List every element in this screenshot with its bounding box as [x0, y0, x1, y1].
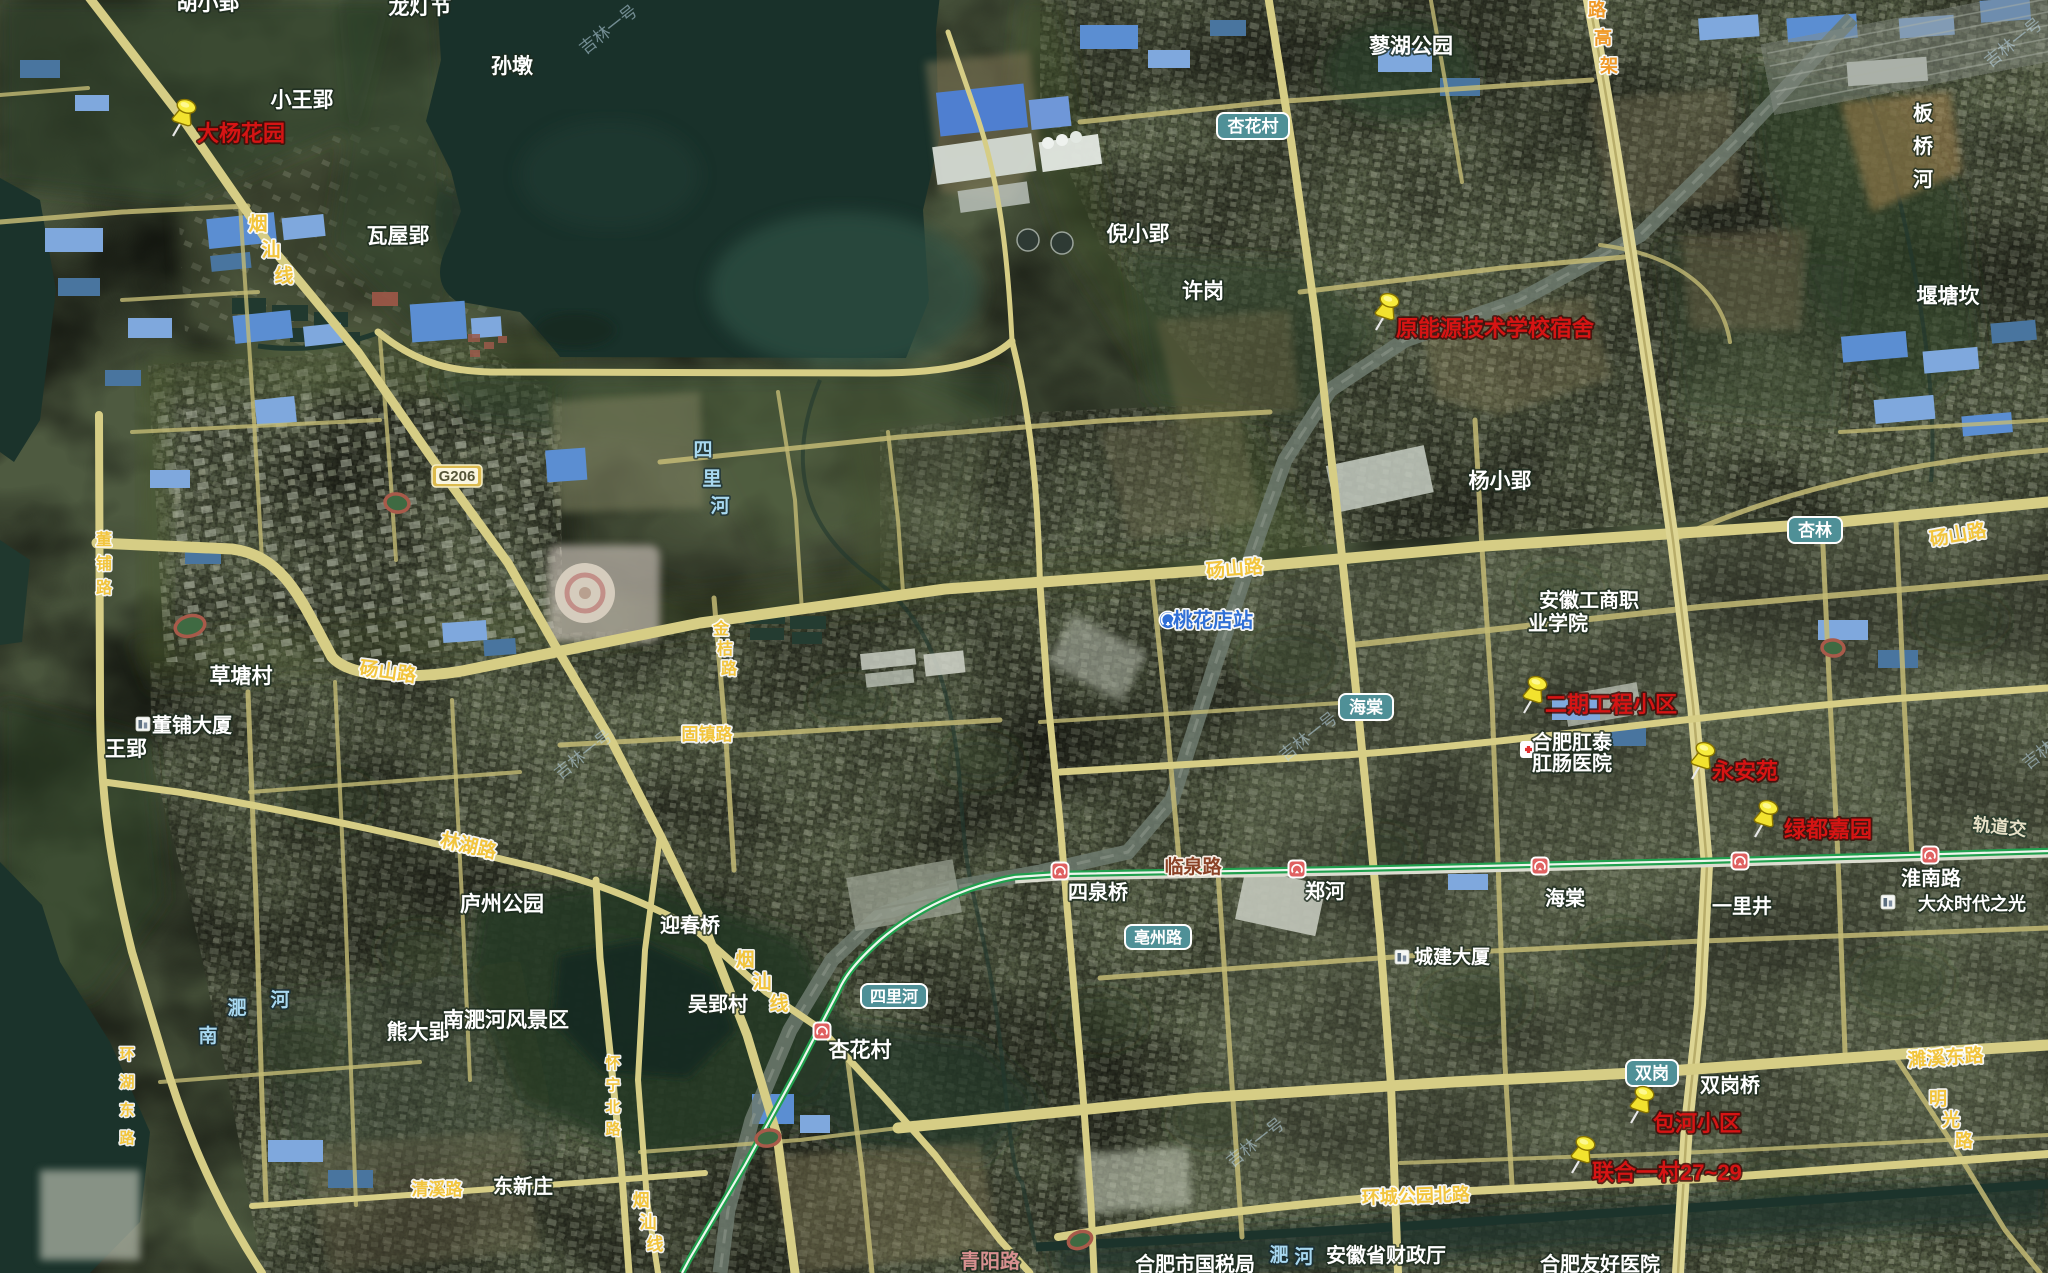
- svg-text:淝: 淝: [227, 996, 246, 1019]
- svg-text:合肥市国税局: 合肥市国税局: [1135, 1252, 1255, 1273]
- svg-text:路: 路: [1588, 0, 1607, 20]
- svg-text:大杨花园: 大杨花园: [197, 121, 285, 146]
- svg-text:亳州路: 亳州路: [1134, 928, 1183, 947]
- svg-text:汕: 汕: [640, 1213, 657, 1232]
- svg-text:桥: 桥: [1913, 135, 1934, 158]
- svg-text:光: 光: [1941, 1109, 1960, 1130]
- svg-text:四里河: 四里河: [870, 987, 918, 1006]
- svg-text:双岗: 双岗: [1635, 1063, 1669, 1083]
- svg-text:城建大厦: 城建大厦: [1414, 945, 1491, 968]
- svg-text:包河小区: 包河小区: [1653, 1111, 1741, 1136]
- svg-text:烟: 烟: [633, 1190, 650, 1210]
- svg-text:汕: 汕: [261, 239, 280, 261]
- svg-text:路: 路: [721, 659, 738, 678]
- svg-text:路: 路: [1955, 1130, 1974, 1151]
- svg-text:架: 架: [1600, 55, 1618, 76]
- svg-text:胡小郢: 胡小郢: [177, 0, 240, 15]
- svg-text:熊大郢: 熊大郢: [387, 1020, 450, 1044]
- svg-text:烟: 烟: [735, 948, 754, 971]
- svg-text:明: 明: [1929, 1089, 1947, 1109]
- svg-text:郑河: 郑河: [1305, 880, 1345, 903]
- svg-text:海棠: 海棠: [1349, 697, 1384, 717]
- svg-text:河: 河: [710, 495, 729, 517]
- svg-text:孙墩: 孙墩: [491, 54, 534, 78]
- svg-text:湖: 湖: [119, 1074, 134, 1091]
- svg-text:绿都嘉园: 绿都嘉园: [1784, 817, 1872, 842]
- svg-text:青阳路: 青阳路: [960, 1249, 1021, 1273]
- svg-text:海棠: 海棠: [1545, 886, 1586, 910]
- svg-text:桔: 桔: [717, 639, 733, 658]
- svg-text:小王郢: 小王郢: [271, 89, 334, 112]
- svg-text:汕: 汕: [752, 971, 771, 993]
- svg-text:临泉路: 临泉路: [1164, 855, 1222, 878]
- svg-text:杨小郢: 杨小郢: [1469, 470, 1532, 493]
- svg-text:宁: 宁: [605, 1076, 620, 1094]
- svg-text:线: 线: [769, 992, 788, 1015]
- svg-text:董铺大厦: 董铺大厦: [152, 713, 233, 737]
- svg-text:清溪路: 清溪路: [412, 1179, 464, 1199]
- svg-text:一里井: 一里井: [1712, 895, 1772, 918]
- svg-text:杏林: 杏林: [1798, 520, 1832, 540]
- svg-text:铺: 铺: [96, 554, 112, 573]
- svg-text:大众时代之光: 大众时代之光: [1918, 893, 2026, 914]
- svg-text:业学院: 业学院: [1528, 611, 1588, 635]
- svg-text:双岗桥: 双岗桥: [1700, 1074, 1761, 1097]
- svg-text:庐州公园: 庐州公园: [460, 892, 544, 916]
- svg-text:河: 河: [270, 989, 289, 1011]
- svg-text:四: 四: [693, 440, 712, 461]
- svg-text:怀: 怀: [605, 1054, 620, 1072]
- svg-text:联合一村27~29: 联合一村27~29: [1592, 1160, 1742, 1185]
- svg-text:倪小郢: 倪小郢: [1107, 222, 1170, 246]
- svg-text:原能源技术学校宿舍: 原能源技术学校宿舍: [1396, 316, 1595, 341]
- svg-text:烟: 烟: [248, 212, 267, 235]
- svg-text:合肥肛泰: 合肥肛泰: [1532, 730, 1613, 754]
- svg-text:固镇路: 固镇路: [682, 724, 734, 744]
- svg-text:东: 东: [119, 1101, 134, 1119]
- svg-text:河: 河: [1913, 168, 1933, 191]
- svg-text:路: 路: [605, 1120, 621, 1138]
- svg-text:迎春桥: 迎春桥: [660, 913, 721, 937]
- svg-text:环城公园北路: 环城公园北路: [1361, 1183, 1471, 1208]
- svg-text:四泉桥: 四泉桥: [1068, 880, 1129, 904]
- svg-text:环: 环: [119, 1046, 134, 1063]
- svg-text:金: 金: [712, 619, 730, 638]
- svg-text:G206: G206: [439, 468, 476, 485]
- svg-text:王郢: 王郢: [105, 738, 147, 761]
- svg-text:淝: 淝: [1269, 1243, 1288, 1266]
- svg-text:草塘村: 草塘村: [210, 664, 273, 688]
- svg-text:堰塘坎: 堰塘坎: [1917, 284, 1980, 308]
- svg-text:桃花店站: 桃花店站: [1173, 608, 1253, 632]
- svg-text:高: 高: [1594, 27, 1612, 48]
- svg-text:南: 南: [198, 1025, 217, 1047]
- svg-text:蓼湖公园: 蓼湖公园: [1369, 34, 1453, 58]
- svg-text:北: 北: [605, 1099, 620, 1116]
- svg-text:杏花村: 杏花村: [829, 1038, 892, 1062]
- svg-text:合肥友好医院: 合肥友好医院: [1540, 1252, 1660, 1273]
- svg-text:许岗: 许岗: [1182, 279, 1224, 303]
- svg-text:线: 线: [647, 1234, 664, 1254]
- svg-text:杏花村: 杏花村: [1228, 116, 1279, 136]
- svg-text:安徽省财政厅: 安徽省财政厅: [1326, 1243, 1446, 1267]
- svg-text:永安苑: 永安苑: [1712, 759, 1778, 784]
- svg-text:肛肠医院: 肛肠医院: [1532, 751, 1612, 775]
- svg-text:瓦屋郢: 瓦屋郢: [367, 225, 430, 248]
- svg-text:二期工程小区: 二期工程小区: [1545, 692, 1677, 717]
- svg-text:板: 板: [1913, 101, 1934, 125]
- svg-text:安徽工商职: 安徽工商职: [1539, 588, 1639, 612]
- svg-text:董: 董: [96, 530, 112, 549]
- svg-text:龙灯节: 龙灯节: [389, 0, 452, 19]
- svg-text:南淝河风景区: 南淝河风景区: [443, 1008, 569, 1032]
- svg-text:东新庄: 东新庄: [493, 1174, 553, 1198]
- svg-text:吴郢村: 吴郢村: [688, 993, 748, 1016]
- svg-text:路: 路: [119, 1129, 135, 1147]
- svg-text:线: 线: [274, 264, 293, 287]
- svg-text:路: 路: [96, 578, 113, 597]
- svg-text:淮南路: 淮南路: [1901, 866, 1962, 890]
- svg-text:里: 里: [702, 468, 721, 490]
- svg-text:河: 河: [1294, 1246, 1313, 1268]
